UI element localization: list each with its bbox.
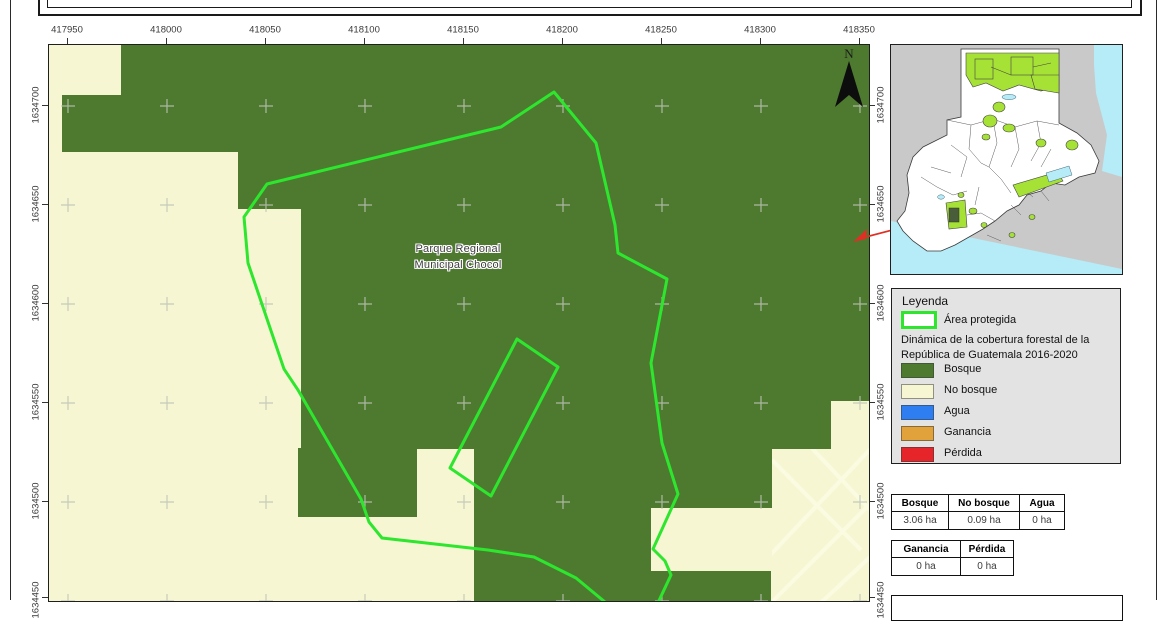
legend-item-label: Ganancia bbox=[944, 426, 991, 438]
legend-title: Leyenda bbox=[902, 294, 948, 308]
x-axis-label: 418200 bbox=[546, 25, 578, 36]
change-header: Ganancia bbox=[892, 541, 961, 558]
page-frame-right bbox=[1156, 0, 1157, 600]
agua-swatch bbox=[901, 405, 934, 420]
y-axis-label: 1634450 bbox=[876, 582, 887, 619]
legend-subtitle: Dinámica de la cobertura forestal de la … bbox=[901, 333, 1089, 363]
y-axis-label: 1634600 bbox=[876, 285, 887, 322]
legend-item-label: Bosque bbox=[944, 363, 981, 375]
title-box-inner bbox=[47, 0, 1132, 8]
y-axis-label: 1634650 bbox=[31, 186, 42, 223]
protected-area-swatch bbox=[901, 311, 937, 329]
perdida-swatch bbox=[901, 447, 934, 462]
legend-item-label: Agua bbox=[944, 405, 970, 417]
coverage-header: Agua bbox=[1020, 495, 1065, 512]
main-map-canvas: Parque Regional Municipal Chocol N bbox=[48, 44, 870, 602]
coverage-table: Bosque No bosque Agua 3.06 ha 0.09 ha 0 … bbox=[891, 494, 1065, 530]
no-bosque-swatch bbox=[901, 384, 934, 399]
page-frame-left bbox=[10, 0, 11, 600]
scale-box-cutoff bbox=[891, 595, 1123, 621]
coverage-value: 0.09 ha bbox=[949, 512, 1020, 530]
legend-item-label: No bosque bbox=[944, 384, 997, 396]
ganancia-swatch bbox=[901, 426, 934, 441]
coverage-header: Bosque bbox=[892, 495, 949, 512]
change-table: Ganancia Pérdida 0 ha 0 ha bbox=[891, 540, 1014, 576]
inset-overview-map bbox=[890, 44, 1123, 275]
change-header: Pérdida bbox=[961, 541, 1014, 558]
x-axis-label: 418050 bbox=[249, 25, 281, 36]
legend-item-label: Pérdida bbox=[944, 447, 982, 459]
y-axis-label: 1634550 bbox=[31, 384, 42, 421]
y-axis-label: 1634600 bbox=[31, 285, 42, 322]
legend-item: No bosque bbox=[901, 384, 1116, 398]
y-axis-label: 1634650 bbox=[876, 186, 887, 223]
legend-item: Bosque bbox=[901, 363, 1116, 377]
legend-item: Ganancia bbox=[901, 426, 1116, 440]
y-axis-label: 1634450 bbox=[31, 582, 42, 619]
change-value: 0 ha bbox=[892, 558, 961, 576]
coverage-header: No bosque bbox=[949, 495, 1020, 512]
map-layout-page: { "map": { "x_labels": ["417950","418000… bbox=[0, 0, 1170, 600]
x-axis-label: 418000 bbox=[150, 25, 182, 36]
x-axis-label: 417950 bbox=[51, 25, 83, 36]
change-value: 0 ha bbox=[961, 558, 1014, 576]
y-axis-label: 1634550 bbox=[876, 384, 887, 421]
y-axis-label: 1634500 bbox=[876, 483, 887, 520]
legend-item: Pérdida bbox=[901, 447, 1116, 461]
x-axis-label: 418300 bbox=[744, 25, 776, 36]
forest-cover-raster bbox=[49, 45, 869, 602]
y-axis-label: 1634700 bbox=[876, 87, 887, 124]
north-arrow-icon bbox=[831, 59, 867, 111]
x-axis-label: 418150 bbox=[447, 25, 479, 36]
park-location-marker bbox=[949, 208, 959, 222]
protected-area-label: Área protegida bbox=[944, 314, 1016, 326]
x-axis-label: 418100 bbox=[348, 25, 380, 36]
coverage-value: 3.06 ha bbox=[892, 512, 949, 530]
y-axis-label: 1634700 bbox=[31, 87, 42, 124]
legend-panel: Leyenda Área protegida Dinámica de la co… bbox=[891, 288, 1121, 464]
legend-item: Agua bbox=[901, 405, 1116, 419]
y-axis-label: 1634500 bbox=[31, 483, 42, 520]
x-axis-label: 418250 bbox=[645, 25, 677, 36]
coverage-value: 0 ha bbox=[1020, 512, 1065, 530]
bosque-swatch bbox=[901, 363, 934, 378]
park-name-label: Parque Regional Municipal Chocol bbox=[415, 241, 502, 273]
x-axis-label: 418350 bbox=[843, 25, 875, 36]
